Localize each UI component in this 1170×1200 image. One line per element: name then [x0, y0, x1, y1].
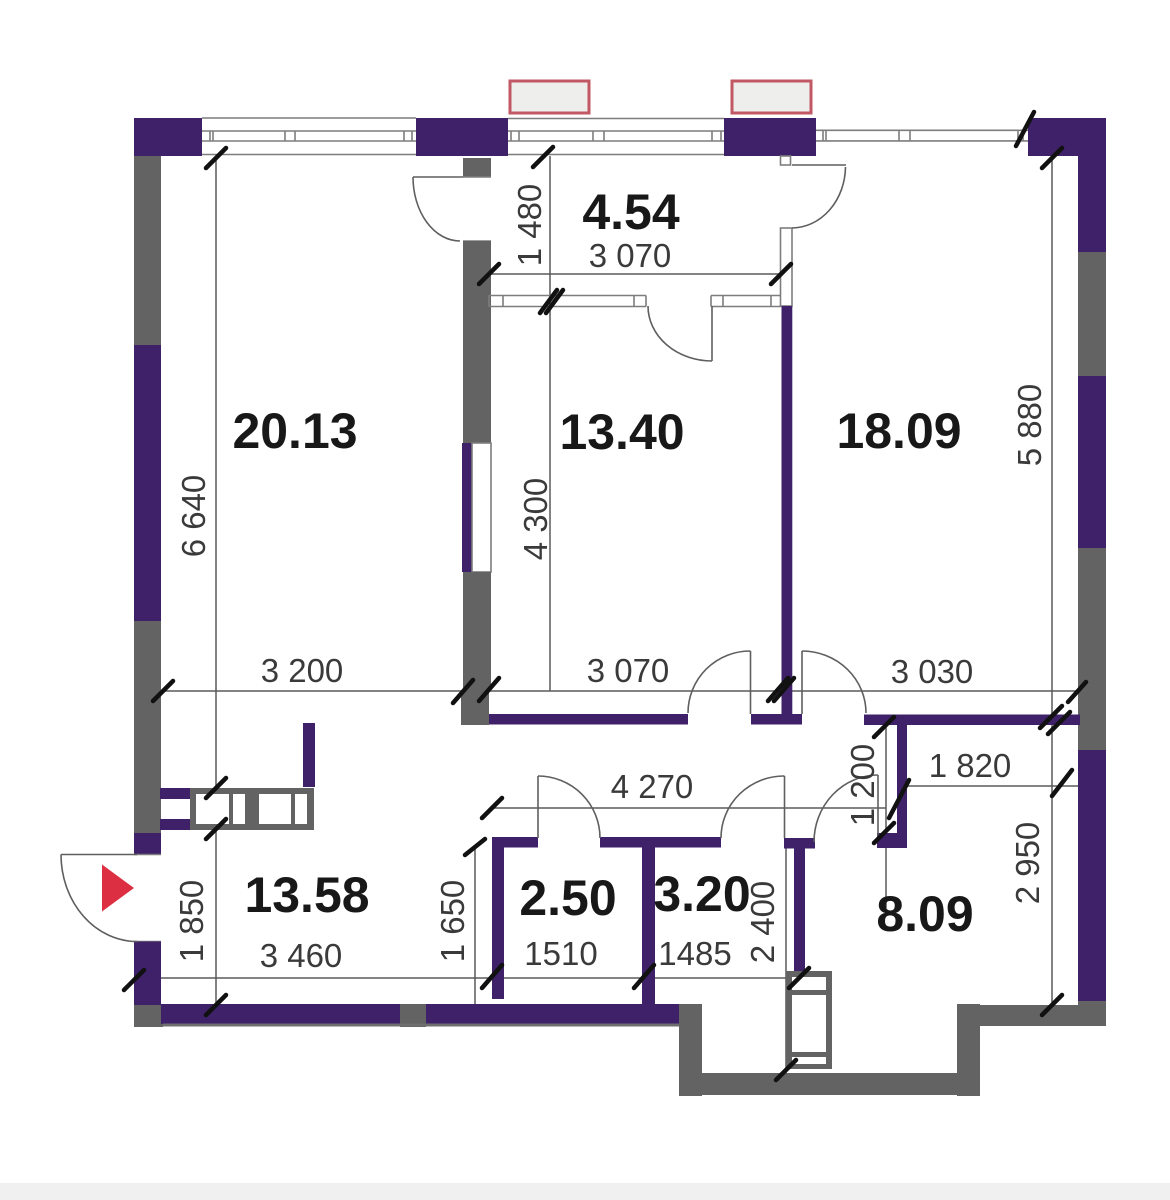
svg-text:3 070: 3 070: [587, 652, 670, 689]
svg-text:4 270: 4 270: [611, 768, 694, 805]
svg-text:1 650: 1 650: [434, 880, 471, 963]
svg-text:6 640: 6 640: [175, 475, 212, 558]
svg-text:2 950: 2 950: [1009, 822, 1046, 905]
svg-text:5 880: 5 880: [1011, 384, 1048, 467]
svg-text:4.54: 4.54: [582, 184, 680, 240]
svg-text:20.13: 20.13: [232, 403, 357, 459]
svg-text:1 200: 1 200: [844, 744, 881, 827]
svg-text:3 200: 3 200: [261, 652, 344, 689]
svg-text:3 030: 3 030: [891, 653, 974, 690]
svg-text:18.09: 18.09: [836, 403, 961, 459]
svg-text:2.50: 2.50: [519, 870, 616, 926]
svg-text:3 460: 3 460: [260, 937, 343, 974]
svg-text:13.58: 13.58: [244, 867, 369, 923]
svg-text:4 300: 4 300: [517, 478, 554, 561]
svg-text:13.40: 13.40: [559, 404, 684, 460]
svg-text:3 070: 3 070: [589, 237, 672, 274]
svg-text:1 820: 1 820: [929, 747, 1012, 784]
svg-text:1 850: 1 850: [173, 880, 210, 963]
svg-text:8.09: 8.09: [876, 886, 973, 942]
svg-text:2 400: 2 400: [744, 881, 781, 964]
svg-text:1485: 1485: [658, 935, 731, 972]
svg-text:1510: 1510: [524, 935, 597, 972]
svg-text:1 480: 1 480: [511, 184, 548, 267]
svg-text:3.20: 3.20: [653, 866, 750, 922]
